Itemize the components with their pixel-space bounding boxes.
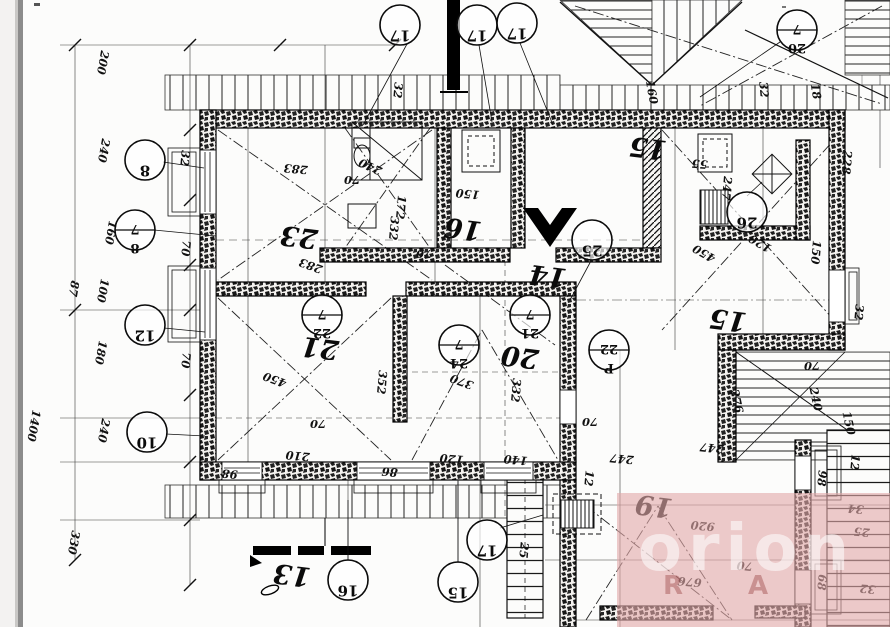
scanned-floor-plan-page: 231615142120151913 200240160100871802401… — [0, 0, 890, 627]
dim-label: 98 — [814, 470, 829, 487]
dim-label: 55 — [691, 156, 708, 171]
reference-bubble: 10 — [127, 412, 167, 452]
bubble-number: 8 — [140, 162, 150, 180]
bubble-number-top: 22 — [600, 341, 618, 356]
leader-line — [570, 259, 592, 300]
dim-label: 332 — [508, 378, 524, 403]
bubble-number: 17 — [477, 542, 498, 560]
floor-plan-drawing: 231615142120151913 200240160100871802401… — [0, 0, 890, 627]
bubble-number-bottom: P — [604, 360, 614, 375]
dim-label: 228 — [839, 149, 855, 175]
room-number: 14 — [527, 258, 568, 293]
reference-bubble: 721 — [510, 295, 550, 340]
dim-label: 32 — [177, 150, 192, 167]
dim-label: 12 — [847, 454, 862, 471]
reference-bubble: 17 — [457, 5, 497, 45]
reference-bubble: 8 — [125, 140, 165, 180]
bubble-number: 17 — [467, 27, 488, 45]
dim-label: 150 — [455, 186, 480, 202]
dim-label: 86 — [381, 464, 398, 479]
leader-line — [164, 328, 205, 332]
dim-label: 332 — [386, 216, 402, 241]
reference-bubble: 26 — [727, 192, 767, 232]
reference-bubble: 16 — [328, 560, 368, 600]
dim-label: 32 — [756, 81, 771, 98]
shower-tray — [462, 130, 500, 172]
room-number: 15 — [707, 302, 748, 337]
dim-label: 283 — [283, 161, 309, 177]
dim-label: 98 — [221, 466, 238, 481]
dim-label: 70 — [344, 173, 360, 187]
reference-bubble: 724 — [439, 325, 479, 370]
bubble-number: 17 — [390, 27, 411, 45]
bubble-number-top: 7 — [317, 306, 326, 321]
bubble-number-top: 7 — [792, 21, 801, 36]
bubble-number-bottom: 22 — [313, 325, 331, 340]
room-number: 16 — [442, 211, 483, 246]
dim-label: 240 — [95, 417, 113, 444]
bubble-number: 12 — [135, 327, 156, 345]
dim-label: 32 — [851, 304, 866, 321]
dim-label: 100 — [94, 278, 112, 304]
bubble-number: 25 — [582, 242, 603, 260]
bubble-number-bottom: 24 — [450, 355, 468, 370]
reference-bubble: 22P — [589, 330, 629, 375]
dim-label: 18 — [808, 82, 825, 100]
dim-label: 370 — [448, 371, 475, 392]
room-number: 23 — [278, 219, 320, 254]
reference-bubble: 17 — [497, 3, 537, 43]
reference-bubble: 17 — [467, 520, 507, 560]
bubble-number-top: 7 — [525, 306, 534, 321]
bubble-number: 15 — [448, 584, 469, 602]
dim-label: 210 — [285, 448, 311, 464]
bubble-number: 10 — [137, 434, 158, 452]
dim-label: 70 — [416, 247, 432, 261]
section-bar-top — [447, 0, 460, 90]
bubble-number-bottom: 8 — [130, 240, 139, 255]
bubble-number-top: 7 — [130, 221, 139, 236]
room-number: 15 — [627, 130, 668, 165]
watermark-logo: orionRA — [617, 493, 890, 627]
bubble-number-bottom: 20 — [788, 40, 806, 55]
dim-label: 180 — [92, 340, 110, 366]
dim-label: 87 — [66, 280, 83, 298]
dim-label: 70 — [310, 417, 326, 431]
leader-line — [166, 434, 205, 436]
dim-label: 1400 — [24, 409, 43, 443]
bubble-number: 16 — [338, 582, 359, 600]
dim-label: 70 — [582, 415, 598, 429]
bubble-number-bottom: 21 — [521, 325, 539, 340]
dim-label: 12 — [581, 470, 596, 487]
dim-label: 150 — [808, 240, 824, 265]
dim-label: 140 — [503, 452, 528, 468]
dim-label: 32 — [390, 82, 405, 99]
dim-label: 450 — [690, 241, 718, 265]
dim-label: 120 — [439, 451, 464, 467]
dim-label: 330 — [65, 530, 83, 556]
reference-bubble: 15 — [438, 562, 478, 602]
dim-label: 240 — [95, 137, 113, 164]
watermark-sub-letter: A — [748, 571, 768, 601]
bubble-number: 26 — [737, 214, 758, 232]
dim-label: 200 — [94, 49, 112, 76]
dim-label: 450 — [261, 369, 288, 390]
dim-label: 70 — [178, 352, 193, 369]
dim-label: 247 — [699, 440, 725, 456]
chimney — [553, 494, 601, 534]
skylight-icon — [752, 154, 792, 194]
room-number: 13 — [271, 557, 312, 592]
watermark-sub-letter: R — [663, 571, 683, 601]
dim-label: 70 — [178, 240, 193, 257]
dim-label: 25 — [516, 541, 531, 559]
room-number: 20 — [499, 339, 541, 374]
roof-hatching — [165, 0, 890, 518]
bubble-number: 17 — [507, 25, 528, 43]
reference-bubble: 78 — [115, 210, 155, 255]
dim-label: 352 — [374, 370, 390, 395]
dim-label: 172 — [393, 195, 409, 220]
reference-bubble: 17 — [380, 5, 420, 45]
bubble-number-top: 7 — [454, 336, 463, 351]
entry-arrow — [523, 208, 577, 247]
dim-label: 247 — [609, 451, 635, 467]
dim-label: 70 — [804, 359, 820, 373]
reference-bubble: 12 — [125, 305, 165, 345]
reference-bubble: 25 — [572, 220, 612, 260]
